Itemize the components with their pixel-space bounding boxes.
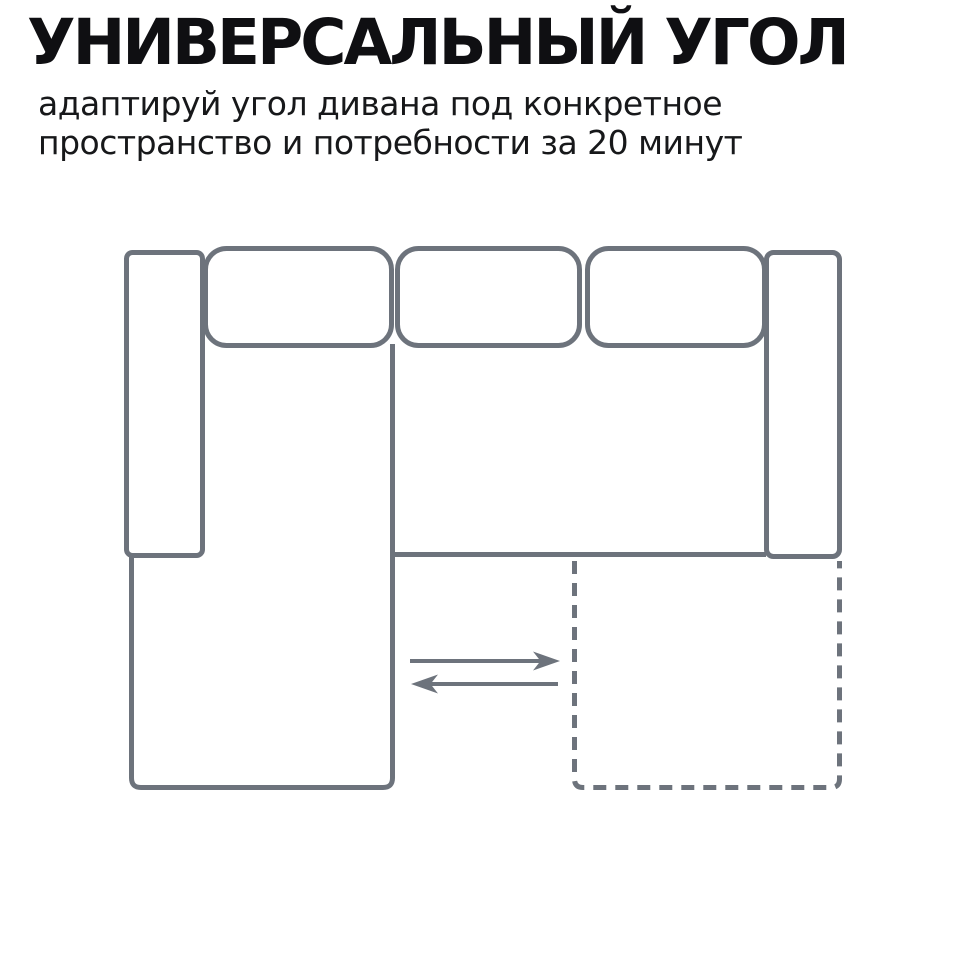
swap-arrows xyxy=(410,652,560,694)
chaise-section xyxy=(132,344,393,788)
swap-arrow-right-icon xyxy=(410,652,560,671)
sofa-diagram xyxy=(0,0,970,970)
movable-corner-dashed-outline xyxy=(575,561,840,788)
infographic-page: УНИВЕРСАЛЬНЫЙ УГОЛ адаптируй угол дивана… xyxy=(0,0,970,970)
movable-corner-alternate-position xyxy=(575,561,840,788)
left-armrest xyxy=(127,253,203,556)
back-cushion-3 xyxy=(588,249,765,346)
right-armrest xyxy=(767,253,840,557)
back-cushion-1 xyxy=(206,249,392,346)
back-cushion-2 xyxy=(398,249,580,346)
sofa-solid-outline xyxy=(127,249,840,788)
swap-arrow-left-icon xyxy=(411,675,558,694)
